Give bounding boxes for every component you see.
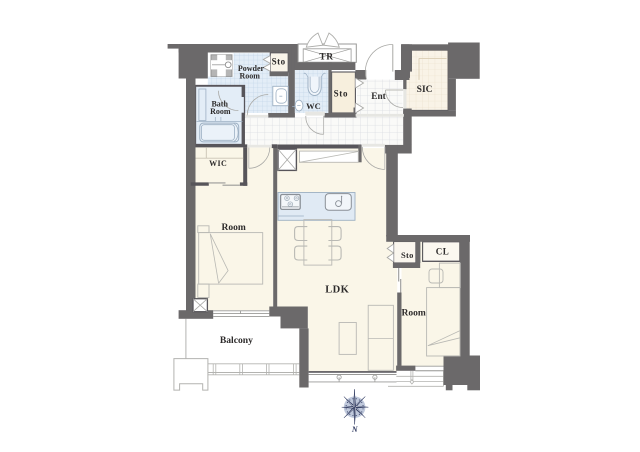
svg-text:Room: Room xyxy=(239,71,260,80)
svg-text:LDK: LDK xyxy=(325,285,349,296)
svg-text:CL: CL xyxy=(436,246,450,256)
svg-text:Sto: Sto xyxy=(401,250,414,260)
svg-text:WC: WC xyxy=(306,101,321,111)
svg-text:TR: TR xyxy=(319,53,333,63)
svg-text:Balcony: Balcony xyxy=(220,335,253,346)
svg-text:Ent: Ent xyxy=(371,92,386,102)
svg-text:SIC: SIC xyxy=(417,85,433,95)
svg-text:Sto: Sto xyxy=(272,56,286,66)
svg-text:Room: Room xyxy=(402,309,426,319)
svg-text:Sto: Sto xyxy=(334,88,349,98)
svg-text:WIC: WIC xyxy=(209,159,227,168)
svg-text:Room: Room xyxy=(221,223,245,233)
svg-text:Room: Room xyxy=(210,107,231,116)
